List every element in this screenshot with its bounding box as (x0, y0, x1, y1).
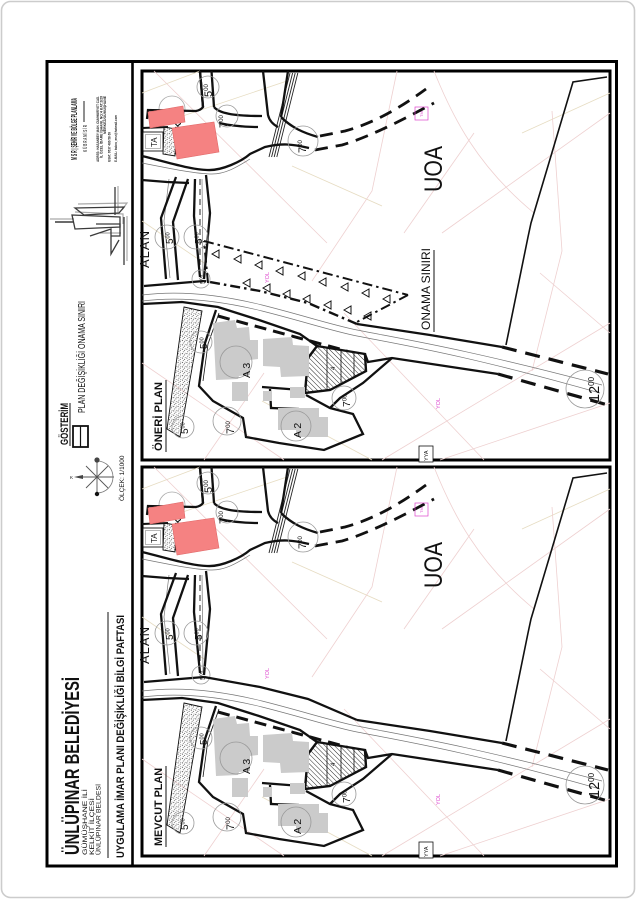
svg-text:K: K (70, 475, 73, 480)
svg-text:GÖSTERİM: GÖSTERİM (58, 403, 71, 445)
svg-text:ÜNLÜPINAR BELDESİ: ÜNLÜPINAR BELDESİ (94, 784, 103, 855)
svg-text:ÖLÇEK: 1/1000: ÖLÇEK: 1/1000 (118, 455, 126, 501)
svg-text:ONAMA SINIRI: ONAMA SINIRI (419, 248, 433, 330)
svg-text:ÜNLÜPINAR BELEDİYESİ: ÜNLÜPINAR BELEDİYESİ (61, 677, 84, 855)
svg-text:K Ü B R A M İ S İ R: K Ü B R A M İ S İ R (82, 125, 89, 152)
svg-text:UYGULAMA İMAR PLANI DEĞİŞİKLİĞ: UYGULAMA İMAR PLANI DEĞİŞİKLİĞİ BİLGİ PA… (114, 615, 127, 858)
svg-text:M S R | ŞEHİR VE BÖLGE PLANLAM: M S R | ŞEHİR VE BÖLGE PLANLAMA (70, 98, 79, 160)
svg-text:GSM: 0537 486 58 69: GSM: 0537 486 58 69 (108, 132, 112, 162)
svg-text:GÜMÜŞHANE İLİ: GÜMÜŞHANE İLİ (80, 789, 89, 855)
svg-text:E-MAIL: kubra_msr@hotmail.com: E-MAIL: kubra_msr@hotmail.com (114, 115, 118, 162)
svg-text:PLAN DEĞİŞİKLİĞİ ONAMA SINIRI: PLAN DEĞİŞİKLİĞİ ONAMA SINIRI (75, 301, 88, 413)
svg-text:MEVCUT PLAN: MEVCUT PLAN (153, 768, 165, 846)
svg-text:ÖNERİ PLAN: ÖNERİ PLAN (152, 382, 165, 451)
svg-text:MERKEZ/GÜMÜŞHANE: MERKEZ/GÜMÜŞHANE (103, 95, 107, 134)
